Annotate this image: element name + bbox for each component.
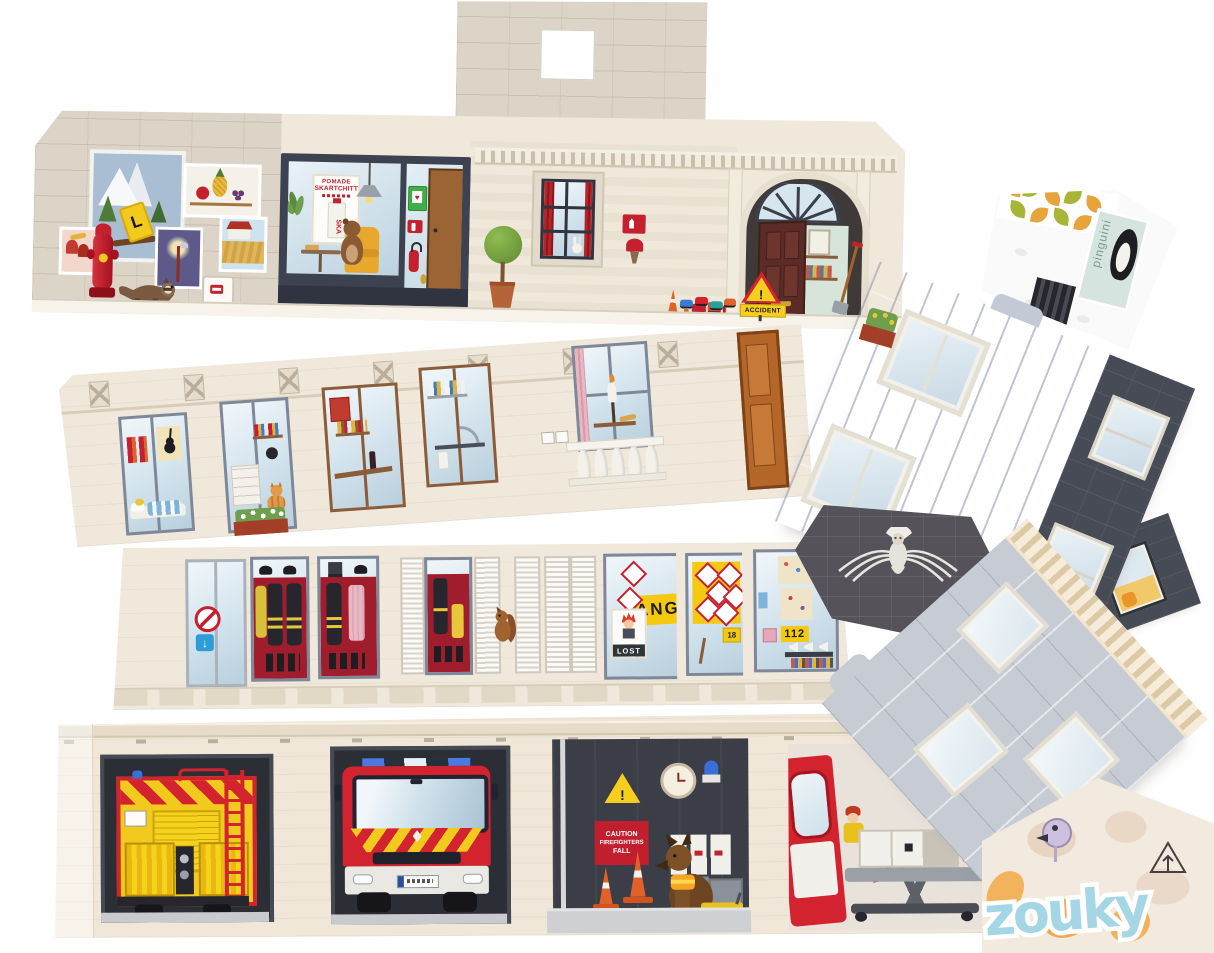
outlet: [541, 432, 555, 445]
cab: [342, 766, 491, 867]
lost-poster: LOST: [611, 608, 647, 658]
lost-label: LOST: [617, 646, 641, 655]
boots: [266, 653, 300, 671]
zouk-text: zouky: [982, 874, 1152, 948]
petal: [1073, 213, 1092, 232]
balcony-window: [571, 341, 654, 452]
stretcher-deck: [845, 867, 985, 882]
ladder-rungs: [226, 774, 243, 898]
hydrant-base: [89, 287, 115, 298]
shelf-items: [126, 436, 148, 463]
lockers-floor-strip: ↓: [112, 542, 851, 710]
pomade-line2: SKARTCHITT: [314, 185, 358, 193]
ext-hose: [411, 242, 422, 252]
apple-icon: [196, 186, 209, 199]
alarm-glyph: [628, 218, 636, 228]
reflective-stripe: [434, 608, 448, 611]
petal: [1064, 187, 1083, 206]
reflective-stripe: [268, 626, 283, 629]
beacon-base: [702, 775, 720, 783]
pink-curtain: [574, 348, 590, 448]
helmet: [354, 565, 367, 574]
marmot: [339, 218, 366, 267]
photo-canvas: ❄ L: [0, 0, 1214, 953]
kid-body: [623, 628, 635, 638]
planter: [234, 518, 289, 541]
corbel: [183, 374, 205, 401]
pendant-lamp: [354, 163, 385, 206]
petal: [1043, 188, 1062, 207]
blue-beacon-lamp: [702, 761, 720, 785]
skylight: [913, 703, 1009, 798]
bathroom-window: [418, 363, 498, 488]
marmot-ear: [343, 218, 349, 224]
petal: [1052, 208, 1071, 227]
books-row: [791, 658, 833, 668]
reflective-stripe: [287, 617, 302, 620]
shutter-panel: [570, 556, 597, 673]
reflective-stripe: [327, 617, 342, 620]
door-white-band: [790, 841, 839, 899]
door-panel: [746, 343, 772, 396]
locker-window-2: [317, 556, 380, 680]
shop-plant: [287, 191, 311, 252]
reflective-stripe: [268, 618, 283, 621]
petal: [1022, 180, 1041, 199]
pineapple-leaves: [216, 168, 225, 177]
door-panel: [784, 231, 800, 259]
petal: [1030, 206, 1049, 225]
down-arrow-icon: ↓: [202, 637, 208, 649]
shop-glass: POMADE SKARTCHITT SKA: [287, 161, 401, 275]
l-plate-glyph: L: [128, 211, 144, 233]
bottles: [254, 423, 281, 437]
accident-label: ACCIDENT: [745, 307, 781, 315]
fire-hydrant: [86, 223, 120, 304]
caution-line2: FIREFIGHTERS: [600, 840, 644, 846]
lamp-cord: [368, 163, 370, 185]
lost-band: LOST: [613, 644, 645, 656]
melting-candle: [607, 382, 617, 403]
penguin-belly: [1113, 241, 1133, 273]
rabbit: [570, 238, 583, 254]
attic-window: [1087, 395, 1170, 481]
shop-door-glass: ♥: [404, 164, 463, 305]
hydrant-side-cap: [111, 250, 119, 260]
stretcher-wheel: [961, 911, 973, 921]
garage-bay-dog: ! CAUTION FIREFIGHTERS FALL: [552, 738, 749, 927]
table-line: [190, 202, 252, 206]
corbel: [278, 367, 300, 394]
garage-bay-yellow-truck: [100, 754, 274, 923]
ambulance-door: [788, 755, 847, 927]
rear-ladder: [222, 770, 247, 902]
sandwich: [305, 245, 319, 250]
yellow-pants: [452, 604, 464, 638]
toy-car: [680, 300, 693, 309]
shelf: [804, 255, 838, 259]
headlight: [353, 874, 373, 884]
plate-small: [124, 811, 146, 827]
frying-pan: [266, 447, 279, 460]
rabbit-head: [572, 243, 582, 253]
license-plate: [397, 875, 439, 888]
broom-blade: [831, 300, 849, 316]
bell-dome: [626, 238, 643, 251]
dash: [212, 288, 221, 291]
alarm-bell: [626, 238, 644, 266]
ribbon: [70, 232, 87, 240]
door-knob: [433, 228, 437, 232]
jars: [337, 420, 368, 434]
emergency-number-label: 112: [784, 628, 805, 640]
skylight-glass: [923, 712, 1000, 788]
aed-panel: ♥: [412, 191, 422, 203]
cleaning-bottles: [428, 380, 465, 396]
hazard-diamond: [620, 561, 647, 588]
interior-door: [426, 168, 463, 291]
triangle-yellow: !: [604, 773, 640, 803]
rearview-mirror: [410, 779, 422, 784]
red-curtain-window: [540, 179, 596, 260]
trunk: [500, 262, 504, 284]
door-panel: [766, 231, 782, 259]
yellow-coat: [255, 586, 266, 638]
map-poster: [780, 588, 812, 620]
hazard-window: 18: [685, 552, 749, 676]
center-column: [176, 846, 194, 894]
white-bird: [833, 527, 963, 593]
cone-body: [626, 851, 650, 897]
warning-triangle: !: [604, 773, 640, 803]
bird-drip: [1054, 846, 1057, 862]
mullion: [564, 182, 569, 256]
bell-icon: [66, 240, 78, 254]
toy-car: [724, 298, 736, 307]
firefighter-uniform: [433, 578, 447, 634]
shutter-panel: [544, 556, 571, 673]
rabbit-ear: [578, 236, 581, 244]
ground-floor-facade-strip: ❄ L: [32, 104, 906, 330]
helmet: [283, 565, 296, 574]
paramedic-face: [848, 813, 859, 823]
wheel: [357, 892, 391, 912]
cone-base: [623, 897, 653, 903]
extinguisher-sign: [407, 220, 422, 233]
guitar-poster: [156, 426, 182, 462]
prohibition-sign: [195, 606, 221, 632]
boots: [329, 653, 365, 669]
curtain-right: [584, 183, 593, 257]
topiary-tree: [481, 225, 525, 310]
tail-light: [180, 870, 189, 879]
wall-clock: [660, 763, 696, 799]
beacon-dome: [704, 761, 718, 775]
blue-tab: [758, 592, 767, 608]
tail-light: [180, 854, 189, 863]
garage-floor-slab: [547, 907, 751, 933]
locker-window-1: [250, 556, 310, 682]
grille: [373, 852, 461, 864]
firefighter-uniform: [286, 583, 302, 645]
garage-floor: [101, 912, 269, 923]
exclamation-icon: !: [620, 788, 625, 803]
upper-orange-door: [737, 330, 790, 491]
pink-robe: [348, 585, 364, 641]
heart-icon: ♥: [415, 192, 420, 201]
handrail: [178, 768, 228, 781]
clock-hand: [678, 780, 685, 782]
farm-roof: [226, 221, 252, 230]
fruit-poster: [183, 163, 262, 219]
sign-pole: [759, 315, 762, 321]
extinguisher-glyph: [411, 223, 415, 231]
candle-flame: [609, 374, 615, 382]
helmet: [259, 566, 272, 575]
farm-poster: [219, 216, 268, 273]
station-glass-door: ↓: [185, 559, 247, 688]
toy-car: [695, 297, 708, 306]
red-cupboard: [329, 397, 351, 422]
door-track-pipe: [560, 739, 566, 927]
traffic-cone: [623, 851, 653, 903]
grapes-icon: [232, 189, 246, 200]
moth-icon: [180, 242, 188, 248]
bird-eye: [1052, 825, 1058, 831]
dresser: [231, 464, 262, 506]
first-floor-facade-strip: [58, 324, 813, 548]
penguin-illustration: [1106, 226, 1142, 282]
topiary-ball: [484, 225, 523, 264]
stick: [699, 638, 706, 664]
ext-body: [409, 250, 419, 272]
lamp-shade: [356, 185, 382, 198]
tube-cap: [333, 198, 341, 203]
bell-mount: [630, 251, 639, 263]
shop-front: POMADE SKARTCHITT SKA: [278, 153, 471, 311]
kid-face: [624, 619, 634, 628]
exclamation-icon: !: [759, 288, 764, 301]
case-latch: [905, 844, 913, 852]
megaphone: [819, 642, 832, 652]
shelf-dark: [785, 652, 833, 657]
door-window: [788, 769, 833, 840]
fanlight: [754, 183, 843, 223]
kitchen-window: [321, 382, 406, 512]
traffic-cone: [593, 867, 619, 909]
corbel: [88, 380, 110, 407]
bedroom-window: [118, 412, 195, 536]
firefighter-uniform: [326, 583, 342, 645]
plate-eu-tag: [398, 876, 404, 887]
plate-chars: [407, 879, 433, 883]
towel: [437, 451, 449, 470]
bird-head-circle: [1042, 818, 1072, 848]
pot: [489, 282, 516, 311]
lamp-bulb-glow: [365, 197, 373, 203]
bed: [129, 493, 187, 523]
wine-bottle: [369, 451, 376, 469]
locker-window-3: [424, 557, 473, 675]
petal: [1004, 179, 1023, 198]
fire-extinguisher: [408, 242, 421, 272]
megaphone: [804, 642, 817, 652]
wheel: [443, 892, 477, 912]
field: [222, 241, 264, 264]
firefighter-uniform: [267, 584, 283, 646]
shelf: [803, 277, 837, 281]
hose-locker: [125, 842, 175, 896]
emergency-number-sign: 112: [781, 626, 809, 642]
curtain-left: [543, 182, 555, 256]
mullion: [358, 388, 369, 507]
aed-box: ♥: [408, 186, 428, 211]
toy-car: [710, 301, 723, 310]
zouk-graffiti-text: zouky: [976, 864, 1208, 953]
candle-stand: [611, 402, 616, 424]
skylight: [956, 581, 1049, 674]
headlight: [463, 874, 483, 884]
red-fire-truck: [342, 758, 491, 911]
cafe-table: [301, 250, 341, 273]
blue-beacon: [132, 771, 142, 779]
picture-frame: [808, 229, 831, 255]
books: [806, 265, 832, 278]
squiggle: [322, 194, 350, 198]
boots: [434, 646, 464, 662]
down-arrow-sign: ↓: [196, 634, 214, 651]
mini-no-entry-sign: [210, 285, 223, 294]
flower-box: [233, 506, 289, 540]
petal: [1009, 200, 1028, 219]
corbel: [657, 341, 679, 368]
table-leg: [319, 254, 322, 272]
balcony-balustrade: [570, 436, 661, 486]
caution-line1: CAUTION: [606, 831, 638, 838]
rabbit-ear: [573, 236, 576, 244]
engine-tag-label: 18: [727, 631, 736, 640]
door-panel: [750, 403, 776, 466]
reflective-stripe: [287, 625, 302, 628]
stretcher-base: [851, 903, 979, 914]
top-hat: [328, 562, 342, 577]
engine-tag: 18: [723, 628, 741, 643]
side-mirror: [491, 784, 498, 800]
skylight-glass: [966, 591, 1040, 664]
outlet: [555, 431, 569, 444]
accident-sign: ! ACCIDENT: [738, 271, 787, 320]
accident-plate: ACCIDENT: [740, 304, 786, 318]
purple-bird-head: [1040, 818, 1070, 862]
fire-alarm-sign: [622, 214, 645, 233]
lower-cab: [345, 866, 489, 895]
cone-body: [595, 867, 616, 904]
cone-body: [666, 289, 681, 312]
squirrel: [491, 604, 521, 646]
garage-floor: [331, 914, 507, 925]
strip-left-flap: [54, 722, 94, 938]
shutter-panel: [400, 557, 425, 674]
lost-poster-window: DANGER LOST: [603, 553, 683, 680]
stretcher-wheel: [855, 912, 867, 922]
pink-card: [763, 628, 777, 642]
tree-icon: [151, 200, 167, 222]
pineapple-icon: [212, 175, 227, 197]
blanket: [147, 500, 182, 516]
megaphone: [789, 642, 802, 652]
die-cut-hole: [540, 29, 595, 80]
garage-bay-red-truck: [330, 746, 511, 925]
side-mirror: [334, 784, 341, 800]
wall-outlet-plaques: [541, 431, 568, 445]
reflective-stripe: [327, 625, 342, 628]
